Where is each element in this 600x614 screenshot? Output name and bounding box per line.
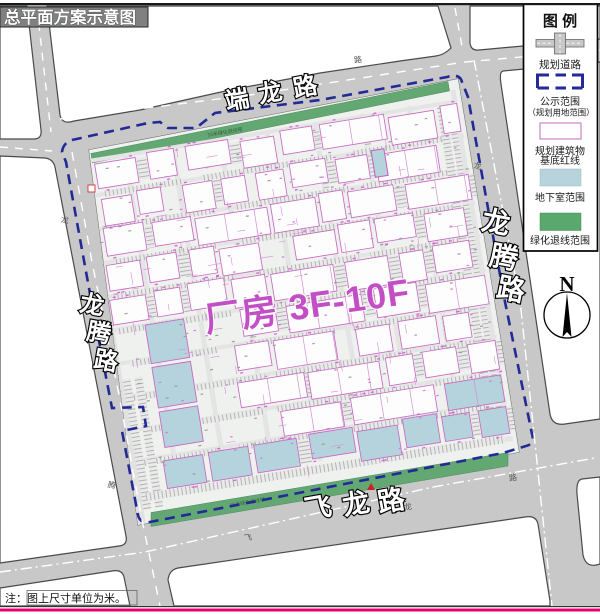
svg-text:飞: 飞	[302, 491, 334, 525]
svg-text:地下室范围: 地下室范围	[535, 191, 585, 204]
svg-text:路: 路	[353, 54, 362, 65]
svg-text:总平面方案示意图: 总平面方案示意图	[4, 7, 136, 27]
svg-text:图 例: 图 例	[543, 12, 577, 30]
svg-text:龙: 龙	[256, 78, 285, 109]
svg-text:龙: 龙	[60, 214, 70, 225]
svg-text:路: 路	[508, 472, 517, 483]
svg-text:规划道路: 规划道路	[539, 58, 581, 71]
svg-text:端: 端	[223, 85, 252, 116]
svg-text:龙: 龙	[403, 501, 412, 512]
svg-text:注：图上尺寸单位为米。: 注：图上尺寸单位为米。	[5, 591, 126, 605]
svg-text:公示范围: 公示范围	[540, 95, 580, 108]
svg-text:龙: 龙	[340, 487, 372, 521]
svg-text:绿化退线范围: 绿化退线范围	[530, 234, 590, 247]
svg-text:（规划用地范围）: （规划用地范围）	[528, 108, 595, 118]
svg-text:飞: 飞	[243, 533, 252, 543]
svg-text:龙: 龙	[479, 205, 512, 241]
svg-text:龙: 龙	[78, 290, 106, 321]
svg-text:基底红线: 基底红线	[540, 154, 580, 167]
